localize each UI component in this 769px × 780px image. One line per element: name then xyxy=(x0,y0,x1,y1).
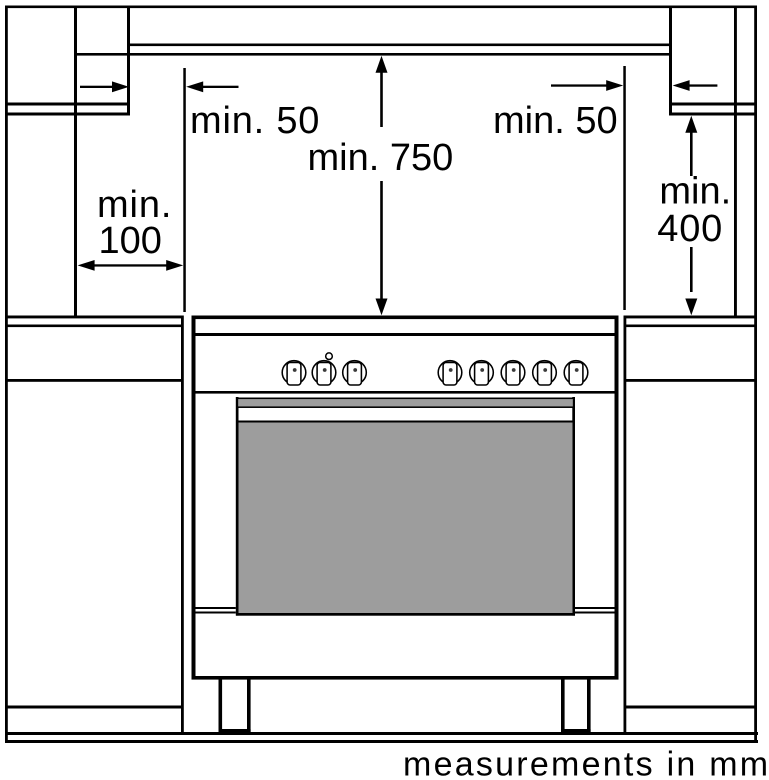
svg-text:min. 50: min. 50 xyxy=(190,100,320,142)
svg-text:min. 50: min. 50 xyxy=(493,100,618,142)
svg-text:100: 100 xyxy=(99,220,162,262)
svg-text:min.: min. xyxy=(659,170,731,212)
svg-text:400: 400 xyxy=(657,208,723,250)
svg-text:min. 750: min. 750 xyxy=(308,137,454,179)
svg-text:measurements in mm: measurements in mm xyxy=(403,746,769,780)
